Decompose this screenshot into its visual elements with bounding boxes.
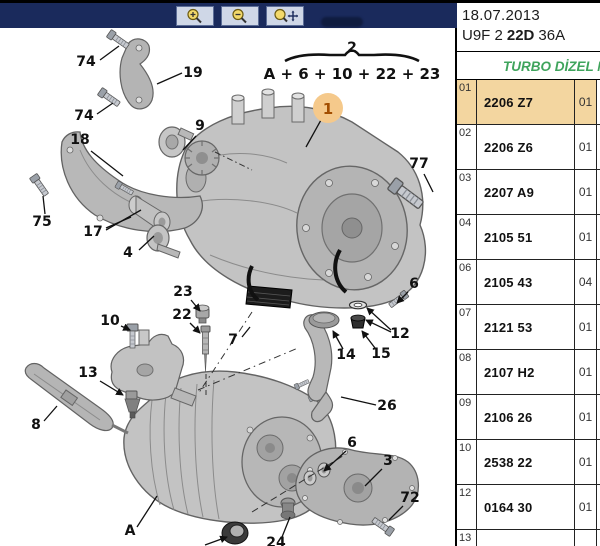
- row-number: 01: [457, 80, 477, 124]
- table-row[interactable]: 09 2106 26 01: [457, 395, 600, 440]
- zoom-out-button[interactable]: [221, 6, 259, 26]
- callout-14[interactable]: 14: [336, 347, 356, 363]
- callout-72[interactable]: 72: [400, 490, 419, 506]
- quantity: 01: [575, 485, 597, 529]
- callout-74b[interactable]: 74: [74, 108, 94, 124]
- oval-plug: [309, 312, 339, 328]
- seal-ring: [222, 522, 248, 544]
- breather-nut: [351, 315, 365, 328]
- parts-table: 01 2206 Z7 01 02 2206 Z6 01 03 2207 A9 0…: [457, 80, 600, 546]
- group-callout-formula: A + 6 + 10 + 22 + 23: [264, 65, 441, 83]
- quantity: 01: [575, 80, 597, 124]
- row-number: 10: [457, 440, 477, 484]
- speed-sensor-long: [201, 326, 210, 372]
- table-row[interactable]: 04 2105 51 01: [457, 215, 600, 260]
- callout-22[interactable]: 22: [172, 307, 191, 323]
- quantity: 01: [575, 395, 597, 439]
- callout-15[interactable]: 15: [371, 346, 390, 362]
- table-row[interactable]: 02 2206 Z6 01: [457, 125, 600, 170]
- upper-gearbox-housing: [177, 89, 426, 308]
- callout-9[interactable]: 9: [195, 118, 205, 134]
- callout-7[interactable]: 7: [228, 332, 238, 348]
- group-callout: 2 A + 6 + 10 + 22 + 23: [264, 40, 441, 83]
- zoom-pan-icon: [272, 8, 298, 24]
- callout-24[interactable]: 24: [266, 535, 286, 546]
- exploded-parts-diagram: 2 A + 6 + 10 + 22 + 23 1 74 19 74 18 75 …: [0, 0, 457, 546]
- catalog-date: 18.07.2013: [462, 7, 600, 24]
- part-number[interactable]: 2105 51: [477, 215, 575, 259]
- zoom-out-icon: [229, 8, 251, 24]
- callout-1[interactable]: 1: [323, 100, 333, 118]
- diagram-pane: 2 A + 6 + 10 + 22 + 23 1 74 19 74 18 75 …: [0, 0, 457, 546]
- quantity: [575, 530, 597, 546]
- callout-6-upper[interactable]: 6: [409, 276, 419, 292]
- part-number[interactable]: 2106 26: [477, 395, 575, 439]
- part-number[interactable]: 2107 H2: [477, 350, 575, 394]
- table-row[interactable]: 07 2121 53 01: [457, 305, 600, 350]
- callout-10[interactable]: 10: [100, 313, 120, 329]
- table-row[interactable]: 12 0164 30 01: [457, 485, 600, 530]
- part-number[interactable]: 2206 Z7: [477, 80, 575, 124]
- zoom-in-icon: [184, 8, 206, 24]
- row-number: 08: [457, 350, 477, 394]
- part-number[interactable]: 0164 30: [477, 485, 575, 529]
- callout-4[interactable]: 4: [123, 245, 133, 261]
- table-row[interactable]: 13: [457, 530, 600, 546]
- part-number: [477, 530, 575, 546]
- quantity: 01: [575, 125, 597, 169]
- callout-23[interactable]: 23: [173, 284, 192, 300]
- vehicle-code-part2: 22D: [507, 27, 535, 44]
- part-number[interactable]: 2206 Z6: [477, 125, 575, 169]
- row-number: 02: [457, 125, 477, 169]
- row-number: 13: [457, 530, 477, 546]
- support-bracket: [120, 39, 153, 109]
- bolt-75: [29, 173, 50, 197]
- callout-75[interactable]: 75: [32, 214, 51, 230]
- row-number: 12: [457, 485, 477, 529]
- row-number: 06: [457, 260, 477, 304]
- category-header: TURBO DİZEL M: [457, 52, 600, 80]
- toolbar: [0, 0, 457, 28]
- callout-12[interactable]: 12: [390, 326, 409, 342]
- table-row[interactable]: 10 2538 22 01: [457, 440, 600, 485]
- quantity: 01: [575, 350, 597, 394]
- end-cover: [296, 448, 419, 525]
- part-number[interactable]: 2207 A9: [477, 170, 575, 214]
- callout-74a[interactable]: 74: [76, 54, 96, 70]
- callout-6-lower[interactable]: 6: [347, 435, 357, 451]
- table-row[interactable]: 01 2206 Z7 01: [457, 80, 600, 125]
- watermark-smudge: [321, 17, 363, 27]
- quantity: 01: [575, 215, 597, 259]
- part-number[interactable]: 2538 22: [477, 440, 575, 484]
- quantity: 04: [575, 260, 597, 304]
- callout-18[interactable]: 18: [70, 132, 89, 148]
- part-number[interactable]: 2105 43: [477, 260, 575, 304]
- table-row[interactable]: 06 2105 43 04: [457, 260, 600, 305]
- row-number: 04: [457, 215, 477, 259]
- row-number: 03: [457, 170, 477, 214]
- drain-plug-bolt: [127, 324, 138, 348]
- row-number: 07: [457, 305, 477, 349]
- callout-A[interactable]: A: [125, 523, 136, 539]
- quantity: 01: [575, 305, 597, 349]
- table-row[interactable]: 03 2207 A9 01: [457, 170, 600, 215]
- vehicle-code-part3: 36A: [538, 27, 565, 44]
- parts-list-panel: 18.07.2013 U9F 222D36A TURBO DİZEL M 01 …: [455, 0, 600, 546]
- quantity: 01: [575, 440, 597, 484]
- spacer-24: [281, 498, 295, 519]
- callout-17[interactable]: 17: [83, 224, 102, 240]
- part-number[interactable]: 2121 53: [477, 305, 575, 349]
- callout-26[interactable]: 26: [377, 398, 396, 414]
- zoom-in-button[interactable]: [176, 6, 214, 26]
- group-callout-number[interactable]: 2: [347, 40, 357, 56]
- callout-8[interactable]: 8: [31, 417, 41, 433]
- callout-13[interactable]: 13: [78, 365, 97, 381]
- zoom-pan-button[interactable]: [266, 6, 304, 26]
- callout-3[interactable]: 3: [383, 453, 393, 469]
- vehicle-code-part1: U9F 2: [462, 27, 503, 44]
- quantity: 01: [575, 170, 597, 214]
- vehicle-code: U9F 222D36A: [462, 27, 600, 44]
- panel-header: 18.07.2013 U9F 222D36A: [457, 0, 600, 52]
- callout-19[interactable]: 19: [183, 65, 202, 81]
- selector-housing: [111, 330, 196, 406]
- row-number: 09: [457, 395, 477, 439]
- callout-77[interactable]: 77: [409, 156, 428, 172]
- table-row[interactable]: 08 2107 H2 01: [457, 350, 600, 395]
- highlighted-callout[interactable]: 1: [313, 93, 343, 123]
- washer: [350, 301, 367, 309]
